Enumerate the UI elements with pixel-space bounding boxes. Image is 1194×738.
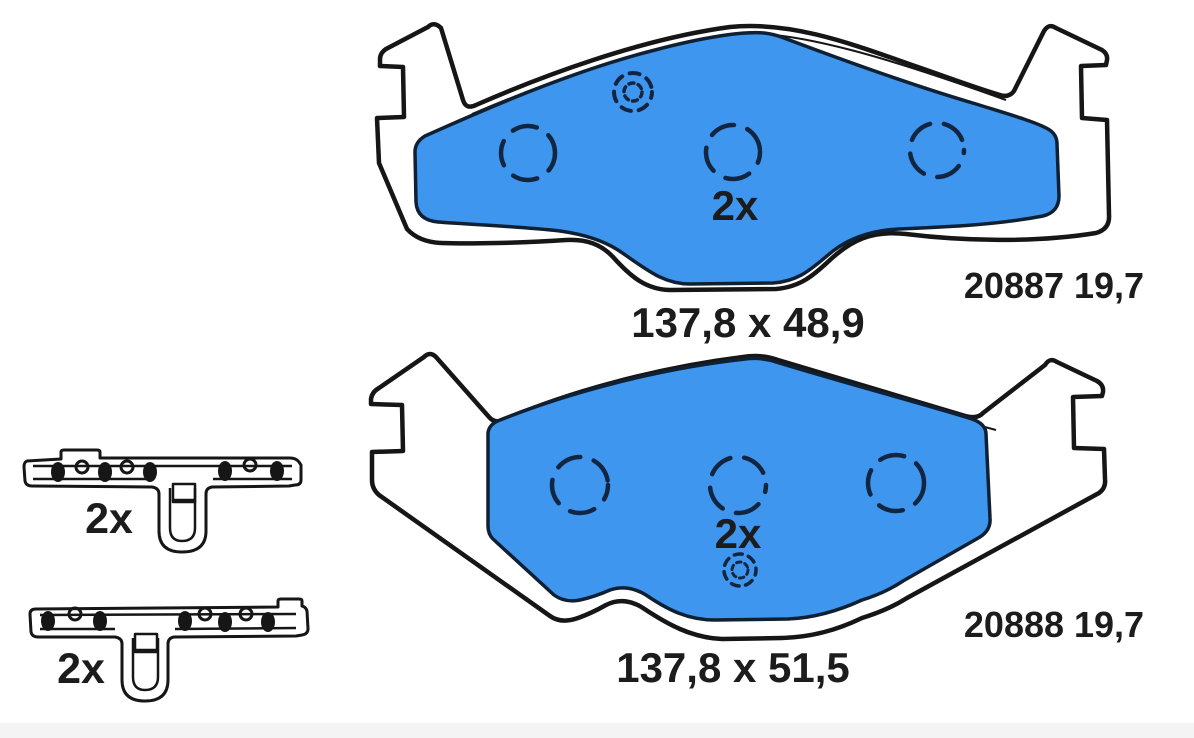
rivet xyxy=(98,462,112,482)
retaining-clip-bottom: 2x xyxy=(30,599,308,701)
pad-top-dimensions-label: 137,8 x 48,9 xyxy=(631,299,865,346)
pad-top-part-code: 20887 19,7 xyxy=(964,265,1144,306)
diagram-svg: 2x 137,8 x 48,9 20887 19,7 2x 137,8 x 51… xyxy=(0,0,1194,738)
pad-top-friction-surface xyxy=(415,33,1059,284)
brake-pad-bottom: 2x xyxy=(371,354,1105,639)
rivet xyxy=(218,461,232,481)
rivet xyxy=(41,611,55,631)
rivet xyxy=(93,611,107,631)
rivet xyxy=(51,462,65,482)
rivet xyxy=(270,461,284,481)
retaining-clip-top: 2x xyxy=(24,450,301,552)
rivet xyxy=(143,462,157,482)
footer-strip xyxy=(0,723,1194,738)
pad-bottom-quantity-label: 2x xyxy=(715,510,762,557)
brake-pad-top: 2x xyxy=(377,24,1109,290)
rivet xyxy=(261,612,275,632)
pad-bottom-dimensions-label: 137,8 x 51,5 xyxy=(616,644,850,691)
rivet xyxy=(178,611,192,631)
rivet xyxy=(218,612,232,632)
brake-pad-parts-diagram: 2x 137,8 x 48,9 20887 19,7 2x 137,8 x 51… xyxy=(0,0,1194,738)
pad-bottom-part-code: 20888 19,7 xyxy=(964,604,1144,645)
clip-top-quantity-label: 2x xyxy=(85,495,133,543)
clip-bottom-quantity-label: 2x xyxy=(57,645,105,693)
pad-top-quantity-label: 2x xyxy=(712,182,759,229)
